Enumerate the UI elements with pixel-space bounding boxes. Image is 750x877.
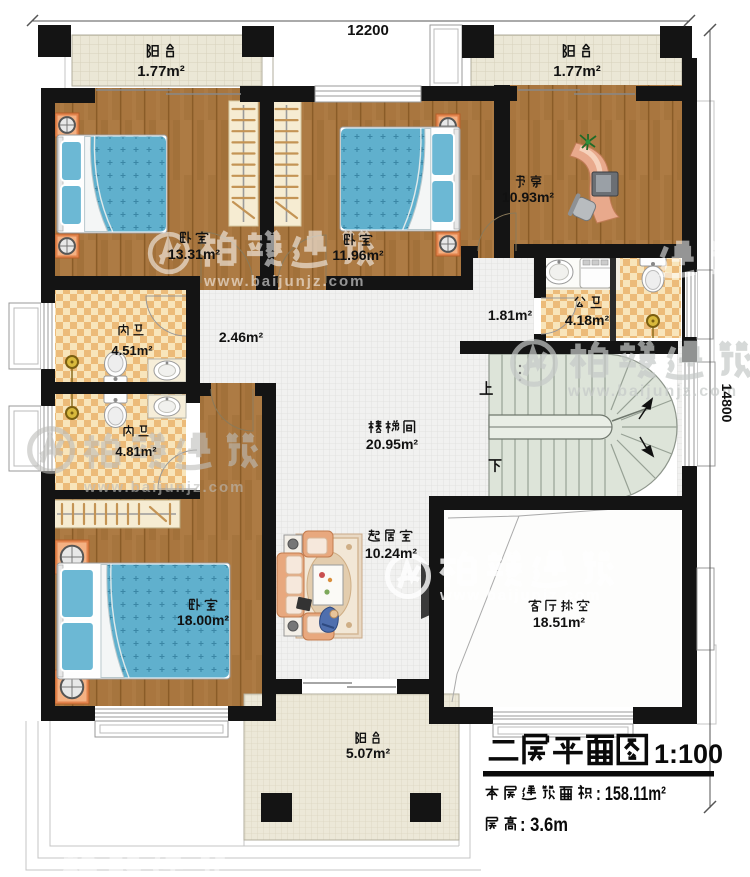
svg-text:20.95m²: 20.95m² xyxy=(366,436,418,452)
svg-text:4.18m²: 4.18m² xyxy=(565,312,610,328)
svg-text:10.24m²: 10.24m² xyxy=(365,545,417,561)
svg-text:1:100: 1:100 xyxy=(654,739,723,769)
svg-text:10.93m²: 10.93m² xyxy=(502,189,554,205)
svg-text:13.31m²: 13.31m² xyxy=(168,246,220,262)
svg-text:18.51m²: 18.51m² xyxy=(533,614,585,630)
svg-text:www.baijunjz.com: www.baijunjz.com xyxy=(567,383,738,400)
svg-text:1.77m²: 1.77m² xyxy=(137,63,185,80)
svg-text:14800: 14800 xyxy=(719,384,735,423)
svg-text:5.07m²: 5.07m² xyxy=(346,745,391,761)
svg-text:2.46m²: 2.46m² xyxy=(219,329,264,345)
svg-text:18.00m²: 18.00m² xyxy=(177,612,229,628)
svg-text:1.81m²: 1.81m² xyxy=(488,307,533,323)
svg-text:11.96m²: 11.96m² xyxy=(332,247,384,263)
svg-text:www.baijunjz.com: www.baijunjz.com xyxy=(83,479,245,496)
svg-text:: 3.6m: : 3.6m xyxy=(520,815,568,836)
svg-text:4.81m²: 4.81m² xyxy=(115,444,157,459)
svg-text:: 158.11m²: : 158.11m² xyxy=(596,784,666,805)
svg-text:www.baijunjz.com: www.baijunjz.com xyxy=(203,273,365,290)
svg-text:1.77m²: 1.77m² xyxy=(553,63,601,80)
svg-text:4.51m²: 4.51m² xyxy=(111,343,153,358)
svg-text:12200: 12200 xyxy=(347,22,389,39)
svg-text:www.baijunjz.com: www.baijunjz.com xyxy=(439,587,601,604)
